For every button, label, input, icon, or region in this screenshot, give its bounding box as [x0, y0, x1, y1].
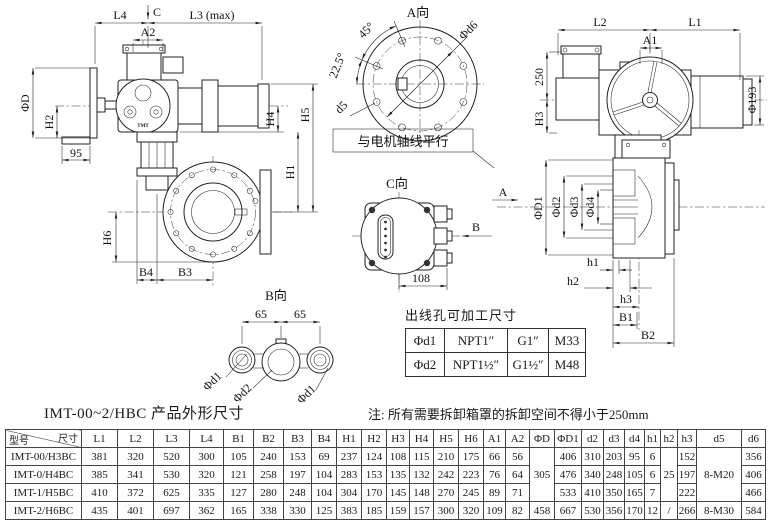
dim-label-a2: A2 [141, 25, 156, 39]
value-cell: 165 [625, 484, 645, 502]
dim-label-phid6: Φd6 [456, 18, 481, 43]
a-view: A向 Φd6 d5 45° 22.5° 与电机轴线平行 [326, 5, 494, 168]
dim-label-phid4: Φd4 [583, 197, 597, 218]
dim-label-95: 95 [70, 146, 82, 160]
handwheel-side [62, 68, 118, 144]
value-cell: 175 [459, 448, 484, 466]
actuator-body: TMT [116, 45, 183, 133]
value-cell: 625 [154, 484, 190, 502]
value-cell: 248 [284, 484, 312, 502]
value-cell: 148 [410, 484, 434, 502]
output-flange-section [613, 158, 665, 258]
table-row: IMT-1/H5BC410372625335127280248104304170… [6, 484, 766, 502]
b-view-title: B向 [265, 288, 287, 303]
value-cell: / [661, 502, 678, 520]
column-header: ΦD [530, 430, 555, 448]
dim-label-225deg: 22.5° [326, 51, 349, 80]
column-header: L2 [118, 430, 154, 448]
dim-label-phid2: Φd2 [549, 197, 563, 218]
column-header: h3 [678, 430, 697, 448]
value-cell: 66 [484, 448, 506, 466]
value-cell: 458 [530, 502, 555, 520]
value-cell: 310 [582, 448, 604, 466]
column-header: B2 [254, 430, 284, 448]
thread-row: Φd2 NPT1½″ G1½″ M48 [406, 353, 586, 377]
b-view: B向 65 65 Φd1 Φd2 Φd1 [200, 288, 333, 402]
thread-table: Φd1 NPT1″ G1″ M33 Φd2 NPT1½″ G1½″ M48 [405, 328, 586, 377]
value-cell: 280 [254, 484, 284, 502]
table-corner-cell: 尺寸型号 [6, 430, 82, 448]
c-view-title: C向 [386, 176, 408, 191]
value-cell: 121 [224, 466, 254, 484]
dim-label-h2: H2 [42, 115, 56, 130]
dim-label-phid1-left: Φd1 [200, 369, 225, 394]
column-header: B1 [224, 430, 254, 448]
column-header: d3 [604, 430, 625, 448]
model-cell: IMT-1/H5BC [6, 484, 82, 502]
thread-cell: M48 [549, 353, 586, 377]
column-header: H5 [434, 430, 459, 448]
value-cell: 165 [224, 502, 254, 520]
value-cell: 401 [118, 502, 154, 520]
value-cell: 185 [362, 502, 387, 520]
value-cell: 82 [506, 502, 530, 520]
value-cell: 170 [625, 502, 645, 520]
value-cell: 435 [82, 502, 118, 520]
cable-entries [434, 206, 452, 266]
column-header: H6 [459, 430, 484, 448]
value-cell: 105 [224, 448, 254, 466]
handwheel-front [607, 57, 693, 143]
dim-label-b4: B4 [139, 265, 153, 279]
value-cell: 476 [555, 466, 582, 484]
dim-label-phid1-right: Φd1 [294, 382, 319, 402]
thread-cell: M33 [549, 329, 586, 353]
value-cell: 466 [742, 484, 766, 502]
value-cell: 383 [337, 502, 362, 520]
value-cell: 170 [362, 484, 387, 502]
value-cell: 242 [434, 466, 459, 484]
value-cell: 105 [625, 466, 645, 484]
value-cell: 385 [82, 466, 118, 484]
value-cell: 12 [645, 502, 661, 520]
brand-logo: TMT [137, 124, 149, 129]
value-cell: 330 [284, 502, 312, 520]
motor-side [178, 80, 269, 132]
value-cell: 56 [506, 448, 530, 466]
value-cell: 320 [118, 448, 154, 466]
value-cell: 210 [434, 448, 459, 466]
thread-table-section: 出线孔可加工尺寸 Φd1 NPT1″ G1″ M33 Φd2 NPT1½″ G1… [405, 305, 586, 377]
value-cell: 305 [530, 448, 555, 502]
value-cell: 157 [410, 502, 434, 520]
dim-label-h1-sec: h1 [587, 255, 599, 269]
column-header: d2 [582, 430, 604, 448]
dim-label-phid3: Φd3 [567, 197, 581, 218]
dim-label-phid: ΦD [18, 94, 32, 112]
sheet-title: IMT-00~2/HBC 产品外形尺寸 [44, 402, 244, 423]
value-cell: 381 [82, 448, 118, 466]
view-direction-b: B [472, 220, 480, 234]
dim-label-phi193: Φ193 [745, 87, 759, 114]
column-header: H3 [387, 430, 410, 448]
table-row: IMT-00/H3BC38132052030010524015369237124… [6, 448, 766, 466]
value-cell: 266 [678, 502, 697, 520]
value-cell: 132 [410, 466, 434, 484]
value-cell: 410 [582, 484, 604, 502]
column-header: H2 [362, 430, 387, 448]
value-cell: 520 [154, 448, 190, 466]
column-header: H4 [410, 430, 434, 448]
column-header: B4 [312, 430, 337, 448]
column-header: h1 [645, 430, 661, 448]
dim-label-l1: L1 [688, 15, 701, 29]
value-cell: 270 [434, 484, 459, 502]
value-cell: 248 [604, 466, 625, 484]
value-cell: 108 [387, 448, 410, 466]
thread-cell: G1½″ [508, 353, 549, 377]
value-cell: 8-M20 [697, 448, 742, 502]
dim-label-65-right: 65 [294, 307, 306, 321]
value-cell: 341 [118, 466, 154, 484]
column-header: A2 [506, 430, 530, 448]
value-cell: 372 [118, 484, 154, 502]
dim-label-l4: L4 [113, 8, 126, 22]
dim-label-phid2-b: Φd2 [230, 381, 255, 402]
value-cell: 6 [645, 466, 661, 484]
column-header: h2 [661, 430, 678, 448]
dim-label-45deg: 45° [355, 19, 377, 41]
dim-label-h1: H1 [283, 165, 297, 180]
dim-label-65-left: 65 [255, 307, 267, 321]
value-cell: 25 [661, 448, 678, 502]
table-row: IMT-2/H6BC435401697362165338330125383185… [6, 502, 766, 520]
keyway [398, 78, 407, 90]
drawing-sheet: TMT [0, 0, 769, 524]
column-header: B3 [284, 430, 312, 448]
value-cell: 145 [387, 484, 410, 502]
motor-axis-note: 与电机轴线平行 [357, 134, 448, 149]
thread-cell: G1″ [508, 329, 549, 353]
value-cell: 153 [362, 466, 387, 484]
value-cell: 406 [742, 466, 766, 484]
dim-label-d5: d5 [332, 98, 350, 116]
value-cell: 533 [555, 484, 582, 502]
value-cell: 340 [582, 466, 604, 484]
value-cell: 530 [582, 502, 604, 520]
value-cell: 697 [154, 502, 190, 520]
value-cell: 222 [678, 484, 697, 502]
value-cell: 197 [678, 466, 697, 484]
dim-label-b1: B1 [619, 310, 633, 324]
value-cell: 667 [555, 502, 582, 520]
value-cell: 356 [742, 448, 766, 466]
column-header: d4 [625, 430, 645, 448]
value-cell: 320 [459, 502, 484, 520]
value-cell: 152 [678, 448, 697, 466]
connector-socket [378, 215, 393, 259]
sheet-note: 注: 所有需要拆卸箱罩的拆卸空间不得小于250mm [368, 404, 649, 423]
column-header: ΦD1 [555, 430, 582, 448]
thread-row: Φd1 NPT1″ G1″ M33 [406, 329, 586, 353]
technical-drawing: TMT [0, 0, 769, 402]
dim-label-b3: B3 [178, 265, 192, 279]
dim-label-108: 108 [412, 271, 430, 285]
view-direction-c: C [153, 5, 161, 19]
dim-label-250: 250 [532, 68, 546, 86]
dim-label-l3: L3 (max) [190, 8, 235, 22]
value-cell: 69 [312, 448, 337, 466]
column-header: d6 [742, 430, 766, 448]
value-cell: 350 [604, 484, 625, 502]
value-cell: 8-M30 [697, 502, 742, 520]
thread-cell: Φd2 [406, 353, 445, 377]
terminal-box [556, 46, 601, 120]
dim-label-phid1: ΦD1 [531, 196, 545, 219]
value-cell: 6 [645, 448, 661, 466]
value-cell: 240 [254, 448, 284, 466]
value-cell: 356 [604, 502, 625, 520]
thread-cell: NPT1½″ [445, 353, 508, 377]
motor-front [691, 76, 752, 128]
value-cell: 71 [506, 484, 530, 502]
dim-label-b2: B2 [641, 328, 655, 342]
side-view: TMT [18, 5, 318, 288]
dimension-table: 尺寸型号L1L2L3L4B1B2B3B4H1H2H3H4H5H6A1A2ΦDΦD… [5, 429, 766, 520]
dim-label-h3: H3 [532, 112, 546, 127]
thread-table-title: 出线孔可加工尺寸 [405, 305, 586, 324]
column-header: H1 [337, 430, 362, 448]
column-header: L4 [190, 430, 224, 448]
value-cell: 159 [387, 502, 410, 520]
value-cell: 89 [484, 484, 506, 502]
column-header: A1 [484, 430, 506, 448]
value-cell: 300 [190, 448, 224, 466]
value-cell: 584 [742, 502, 766, 520]
value-cell: 245 [459, 484, 484, 502]
dim-label-h3-sec: h3 [620, 292, 632, 306]
value-cell: 300 [434, 502, 459, 520]
model-cell: IMT-0/H4BC [6, 466, 82, 484]
c-view: C向 B 108 [352, 176, 492, 292]
thread-cell: NPT1″ [445, 329, 508, 353]
value-cell: 127 [224, 484, 254, 502]
value-cell: 406 [555, 448, 582, 466]
valve-flange [163, 162, 271, 262]
value-cell: 258 [254, 466, 284, 484]
value-cell: 320 [190, 466, 224, 484]
value-cell: 237 [337, 448, 362, 466]
value-cell: 338 [254, 502, 284, 520]
value-cell: 223 [459, 466, 484, 484]
value-cell: 283 [337, 466, 362, 484]
dim-label-a1: A1 [643, 33, 658, 47]
value-cell: 410 [82, 484, 118, 502]
a-view-title: A向 [407, 5, 429, 20]
dim-label-h5: H5 [298, 108, 312, 123]
column-header: d5 [697, 430, 742, 448]
table-header-row: 尺寸型号L1L2L3L4B1B2B3B4H1H2H3H4H5H6A1A2ΦDΦD… [6, 430, 766, 448]
mounting-column [137, 132, 177, 190]
thread-cell: Φd1 [406, 329, 445, 353]
value-cell: 362 [190, 502, 224, 520]
column-header: L1 [82, 430, 118, 448]
dim-label-h4: H4 [263, 112, 277, 127]
value-cell: 203 [604, 448, 625, 466]
dim-label-h2-sec: h2 [567, 274, 579, 288]
value-cell: 135 [387, 466, 410, 484]
value-cell: 104 [312, 466, 337, 484]
value-cell: 335 [190, 484, 224, 502]
value-cell: 95 [625, 448, 645, 466]
value-cell: 197 [284, 466, 312, 484]
value-cell: 64 [506, 466, 530, 484]
column-header: L3 [154, 430, 190, 448]
model-cell: IMT-2/H6BC [6, 502, 82, 520]
table-row: IMT-0/H4BC385341530320121258197104283153… [6, 466, 766, 484]
value-cell: 115 [410, 448, 434, 466]
value-cell: 124 [362, 448, 387, 466]
view-direction-a: A [499, 185, 508, 199]
value-cell: 109 [484, 502, 506, 520]
model-cell: IMT-00/H3BC [6, 448, 82, 466]
value-cell: 125 [312, 502, 337, 520]
dim-label-l2: L2 [593, 15, 606, 29]
value-cell: 76 [484, 466, 506, 484]
dim-label-h6: H6 [100, 231, 114, 246]
value-cell: 153 [284, 448, 312, 466]
front-view: L2 L1 A1 250 H3 Φ193 [532, 15, 767, 150]
value-cell: 304 [337, 484, 362, 502]
value-cell: 530 [154, 466, 190, 484]
value-cell: 7 [645, 484, 661, 502]
value-cell: 104 [312, 484, 337, 502]
